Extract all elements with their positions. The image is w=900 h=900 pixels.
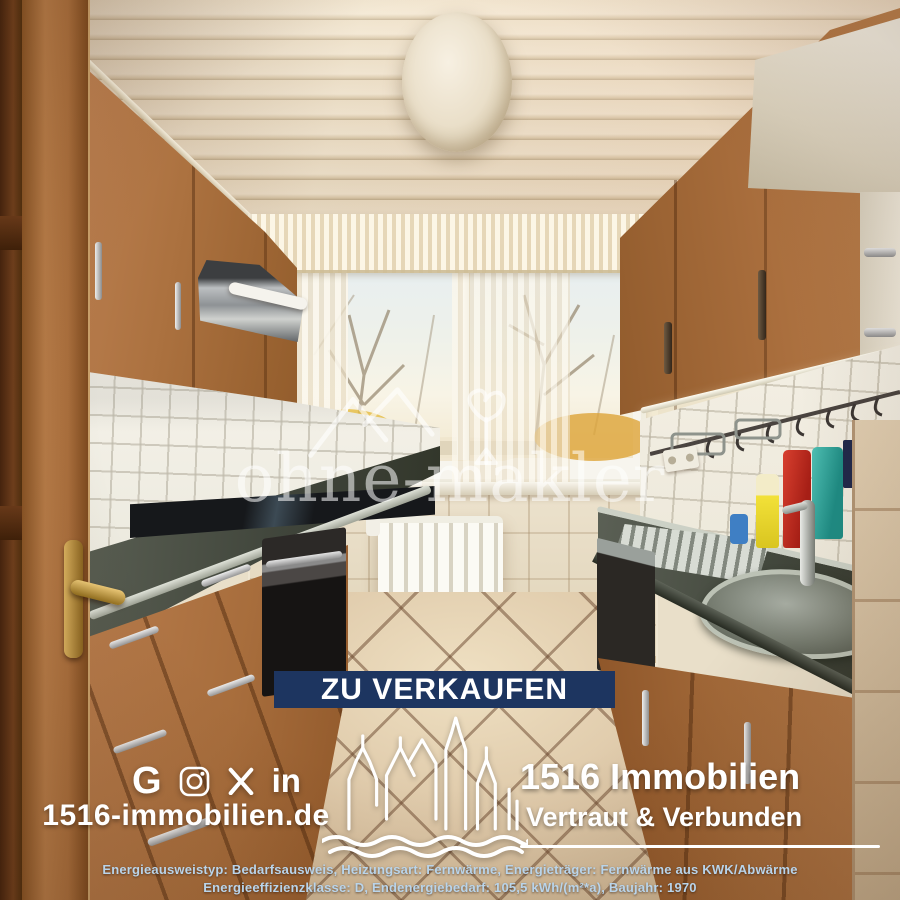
cabinet-handle [95, 242, 102, 300]
x-twitter-icon [227, 767, 255, 795]
website-url: 1516-immobilien.de [25, 799, 347, 833]
company-tagline: Vertraut & Verbunden [526, 802, 866, 833]
energy-certificate-info: Energieausweistyp: Bedarfsausweis, Heizu… [0, 861, 900, 896]
footer-divider-line [520, 845, 880, 848]
cabinet-handle [664, 322, 672, 374]
city-skyline-logo-icon [343, 714, 521, 832]
cabinet-handle [175, 282, 181, 330]
cabinet-handle [642, 690, 649, 746]
curtain-valance [252, 214, 656, 273]
instagram-icon [179, 766, 210, 797]
watermark-text: ohne-makler [0, 440, 900, 517]
google-icon: G [132, 761, 162, 801]
linkedin-icon: in [272, 761, 301, 801]
river-waves-icon [322, 832, 528, 862]
social-icons-row: G in [132, 760, 338, 802]
door-handle-plate [64, 540, 83, 658]
cabinet-handle [864, 328, 896, 337]
for-sale-banner: ZU VERKAUFEN [274, 671, 615, 708]
cabinet-handle [758, 270, 766, 340]
cabinet-handle [864, 248, 896, 257]
company-name: 1516 Immobilien [520, 756, 860, 798]
energy-line-2: Energieeffizienzklasse: D, Endenergiebed… [0, 879, 900, 897]
blue-bottle [730, 514, 748, 544]
energy-line-1: Energieausweistyp: Bedarfsausweis, Heizu… [0, 861, 900, 879]
listing-image: ohne-makler ZU VERKAUFEN G in 1516-immob… [0, 0, 900, 900]
ceiling-lamp [402, 12, 512, 152]
